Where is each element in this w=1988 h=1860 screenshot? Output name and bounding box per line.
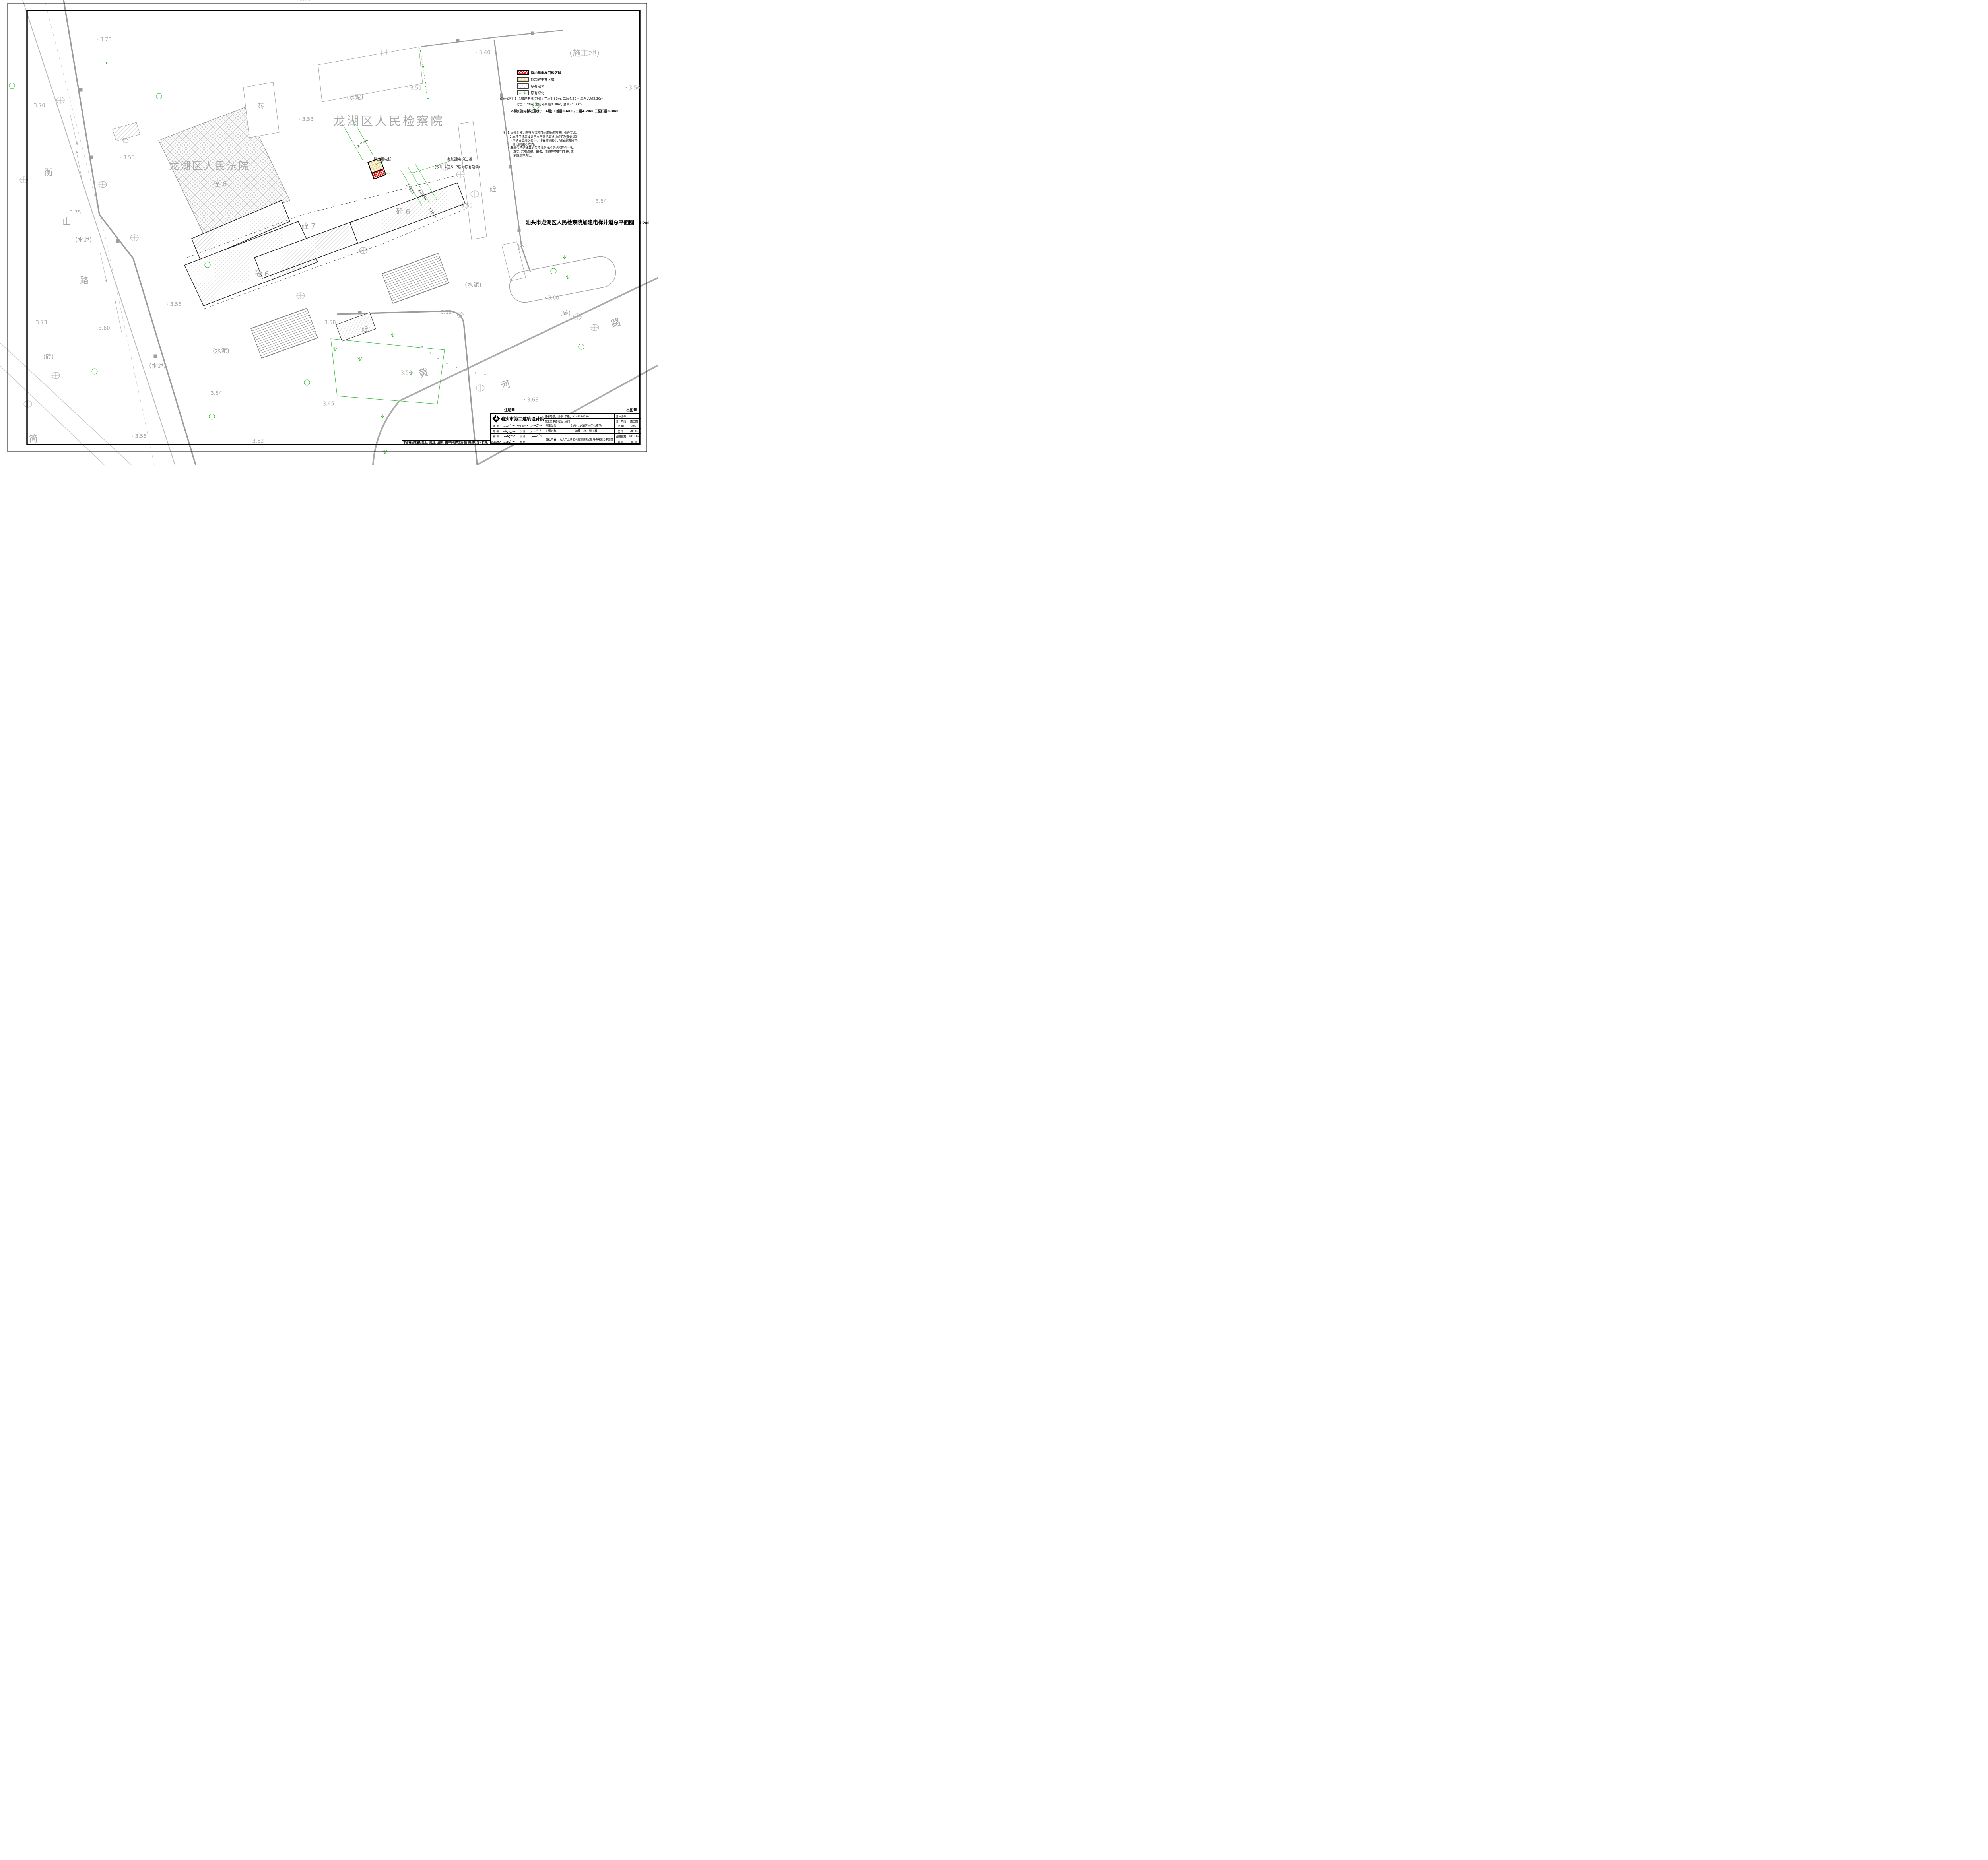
- legend-label: 原有绿化: [531, 91, 544, 95]
- design-note-line: 设计说明: 1.拟加建电梯(7层) : 首层3.60m, 二层4.20m,三至六…: [500, 97, 604, 101]
- elevation-label: · 3.54: [207, 391, 222, 397]
- elevation-label: · 3.52: [437, 310, 452, 316]
- elevation-label: · 3.54: [592, 199, 607, 205]
- stage-label: 设计阶段: [615, 419, 627, 423]
- review-number-line: 施工图审查批准书编号:: [544, 419, 615, 423]
- signature: [501, 434, 517, 439]
- signature: [528, 434, 544, 439]
- elevation-label: · 3.55: [120, 155, 134, 161]
- elevation-label: · 3.73: [97, 37, 111, 43]
- sheet-total-cell: 共 张: [627, 439, 641, 445]
- role-label: 审 定: [491, 423, 501, 429]
- approval-note: 本图需经过报批国土、规划、消防、图审等相关主管部门通过后方可实施。: [402, 440, 491, 445]
- elevation-label: · 3.40: [476, 50, 490, 56]
- signature: [501, 439, 517, 445]
- legend-item: 拟加建电梯门楼区域: [517, 70, 561, 75]
- category-label: 图 别: [615, 423, 627, 429]
- signature: [501, 429, 517, 434]
- yard-gate-ticks: [382, 49, 386, 56]
- surface-label-cement: (水泥): [347, 93, 363, 101]
- drawing-sheet: · 3.73 · 3.70 · 3.55 · 3.75 · 3.73 · 3.6…: [0, 0, 658, 465]
- hengshan-road: [23, 0, 175, 465]
- elevation-label: · 3.60: [95, 326, 110, 332]
- elevation-label: · 3.70: [30, 103, 45, 109]
- surface-label-cement: (水泥): [213, 347, 229, 355]
- passage-annotation: 拟加建电梯过道: [447, 157, 472, 162]
- design-note-line: 七层2.70m, 室内外高差0.30m, 总高24.00m: [516, 102, 582, 107]
- role-label: 审 核: [491, 429, 501, 434]
- court-name-label: 龙湖区人民法院: [169, 158, 250, 173]
- design-note-line: 2.拟加建电梯过道楼(1~4层) : 首层3.60m, 二层4.20m,三至四层…: [511, 109, 620, 113]
- passage-annotation2: (仅1~4层,5~7层为原有建筑): [435, 165, 480, 169]
- elevation-label: · 3.51: [407, 85, 421, 91]
- elevation-label-clipped: 3.73: [300, 0, 311, 2]
- legend-label: 拟加建电梯区域: [531, 77, 555, 82]
- road-name-hengshan: 衡: [44, 165, 53, 178]
- cement-yard: [318, 47, 423, 102]
- elevation-label: · 3.45: [319, 401, 334, 407]
- building-label-concrete6: 砼 6: [396, 206, 410, 216]
- surface-label-brick: (砖): [560, 309, 571, 317]
- sheet-no-value: ZP-01: [627, 429, 641, 434]
- brick-building: [243, 82, 279, 138]
- dot-arc: [421, 346, 485, 375]
- company-logo-cell: [491, 414, 501, 423]
- role-label: 设 计: [517, 429, 528, 434]
- role-label: 校 核: [491, 434, 501, 439]
- info-value: 加建电梯井道工程: [558, 429, 615, 434]
- building-label-concrete7: 砼 7: [301, 221, 315, 231]
- info-value: 汕头市龙湖区人民检察院: [558, 423, 615, 429]
- elevation-label: · 3.68: [524, 397, 538, 403]
- role-label: 制 图: [517, 439, 528, 445]
- legend: 拟加建电梯门楼区域 拟加建电梯区域 原有建筑 原有绿化: [517, 70, 561, 97]
- legend-item: 拟加建电梯区域: [517, 77, 561, 82]
- elevation-label: · 3.53: [299, 117, 313, 123]
- info-value: 汕头市龙湖区人民检察院加建电梯井道总平面图: [558, 434, 615, 445]
- drawing-title-text: 汕头市龙湖区人民检察院加建电梯井道总平面图: [526, 220, 634, 226]
- procuratorate-name-label: 龙湖区人民检察院: [333, 111, 445, 129]
- elevation-label: · 3.58: [132, 434, 146, 440]
- issue-date-label: 出图日期: [615, 434, 627, 439]
- info-label: 图纸内容: [544, 434, 558, 445]
- road-label-jian: 简: [29, 432, 38, 445]
- legend-item: 原有建筑: [517, 83, 561, 89]
- road-name-hengshan: 山: [62, 215, 71, 227]
- stair-fan-right: [382, 253, 449, 303]
- building-label-concrete: 砼: [490, 184, 497, 194]
- issue-date-value: 2018.07: [627, 434, 641, 439]
- design-no-value: [627, 414, 641, 419]
- role-label: 专业负责人: [517, 423, 528, 429]
- certificate-line: 证书等级、编号: 甲级、A144014299: [544, 414, 615, 419]
- boundary-wall: [64, 0, 563, 465]
- legend-item: 原有绿化: [517, 90, 561, 95]
- surface-label-cement: (水泥): [465, 281, 481, 289]
- construction-site-label: (施工地): [569, 47, 600, 58]
- design-no-label: 设计编号: [615, 414, 627, 419]
- surface-label-brick: (砖): [43, 353, 54, 361]
- road-name-hengshan: 路: [80, 274, 89, 286]
- company-name: 汕头市第二建筑设计院: [501, 414, 544, 423]
- drawing-title: 汕头市龙湖区人民检察院加建电梯井道总平面图 1:200: [525, 218, 651, 228]
- building-label-concrete: 砼: [518, 242, 524, 252]
- building-label-concrete: 砼: [457, 310, 464, 320]
- category-value: 建筑: [627, 423, 641, 429]
- info-label: 兴建单位: [544, 423, 558, 429]
- registration-stamp-label: 注册章: [504, 407, 515, 412]
- building-label-brick: 砖: [258, 102, 264, 110]
- info-label: 工程名称: [544, 429, 558, 434]
- drawing-scale: 1:200: [639, 221, 650, 225]
- elevation-label: · 3.62: [249, 439, 264, 445]
- concrete-pad: [336, 313, 376, 341]
- side-lane: [0, 343, 131, 465]
- surface-label-cement: (水泥): [149, 361, 166, 370]
- signature: [528, 429, 544, 434]
- elevation-label: · 3.60: [544, 295, 559, 301]
- legend-label: 拟加建电梯门楼区域: [531, 70, 561, 75]
- legend-swatch-tan-pattern: [517, 77, 529, 82]
- building-label-concrete6: 砼 6: [255, 268, 269, 279]
- legend-swatch-greenery: [517, 90, 529, 95]
- stage-value: 施工图: [627, 419, 641, 423]
- elevation-label: · 3.53: [397, 370, 412, 376]
- issue-stamp-label: 出图章: [626, 407, 637, 412]
- building-label-concrete6: 砼 6: [213, 179, 227, 189]
- carport-strip-right: [458, 122, 487, 239]
- elevation-label: · 3.56: [167, 302, 181, 308]
- role-label: 设 计: [517, 434, 528, 439]
- legend-swatch-red-crosshatch: [517, 70, 529, 75]
- planter-bed-right: [507, 254, 618, 305]
- elevation-label: · 3.73: [32, 320, 47, 326]
- stair-fan-left: [251, 308, 318, 358]
- signature: [501, 423, 517, 429]
- legend-label: 原有建筑: [531, 84, 544, 89]
- signature-empty: [528, 439, 544, 445]
- sheet-no-label: 图 号: [615, 429, 627, 434]
- role-label: 项目负责人: [491, 439, 501, 445]
- elevation-label: · 3.58: [321, 320, 336, 326]
- building-label-concrete: 砼: [122, 136, 128, 144]
- sheet-number-cell: 第 张: [615, 439, 627, 445]
- elevator-annotation: 拟加建电梯: [373, 157, 391, 162]
- company-logo-icon: [492, 414, 501, 423]
- elevation-label: · 3.50: [458, 203, 472, 209]
- surface-label-cement: (水泥): [75, 235, 92, 244]
- site-note-line: 承担法律责任。: [513, 153, 534, 157]
- signature: [528, 423, 544, 429]
- building-label-concrete: 砼: [362, 324, 369, 334]
- legend-swatch-diagonal-hatch: [517, 83, 529, 89]
- elevation-label: · 3.56: [625, 85, 640, 91]
- title-block: 汕头市第二建筑设计院 证书等级、编号: 甲级、A144014299 施工图审查批…: [490, 413, 640, 444]
